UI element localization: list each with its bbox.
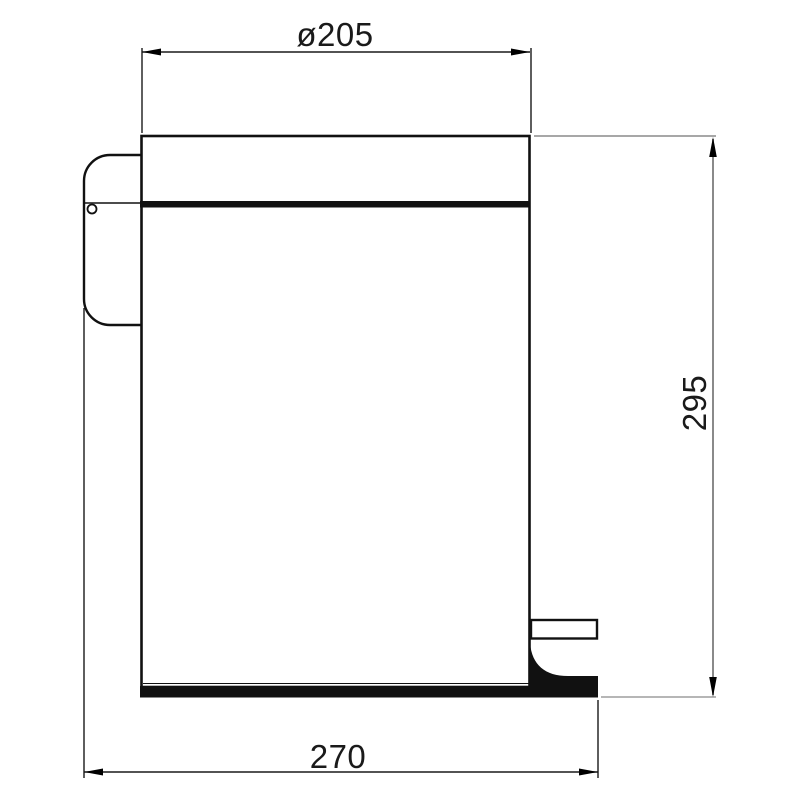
hinge-bracket: [84, 155, 141, 325]
base-bar: [140, 686, 598, 698]
dim-bottom-width-label: 270: [310, 738, 367, 775]
dim-height: 295: [534, 136, 717, 697]
dim-top-width-label: ø205: [296, 16, 373, 53]
dim-top-arrow-left-icon: [142, 49, 161, 56]
pedal-arm: [530, 643, 598, 697]
dim-top-width: ø205: [142, 16, 531, 133]
lid-rim-bar: [140, 201, 530, 208]
bin-body: [142, 136, 530, 687]
dim-bottom-arrow-left-icon: [84, 769, 103, 776]
hinge-hole: [88, 205, 97, 214]
pedal-bin-drawing: ø205 295 270: [0, 0, 800, 800]
dim-height-arrow-bottom-icon: [709, 677, 717, 697]
dim-height-label: 295: [676, 375, 713, 432]
foot-pedal: [531, 620, 597, 639]
dim-height-arrow-top-icon: [709, 137, 717, 157]
dim-bottom-arrow-right-icon: [579, 769, 598, 776]
dim-top-arrow-right-icon: [511, 49, 530, 56]
bin-outline-group: [84, 136, 598, 698]
technical-drawing-canvas: ø205 295 270: [0, 0, 800, 800]
